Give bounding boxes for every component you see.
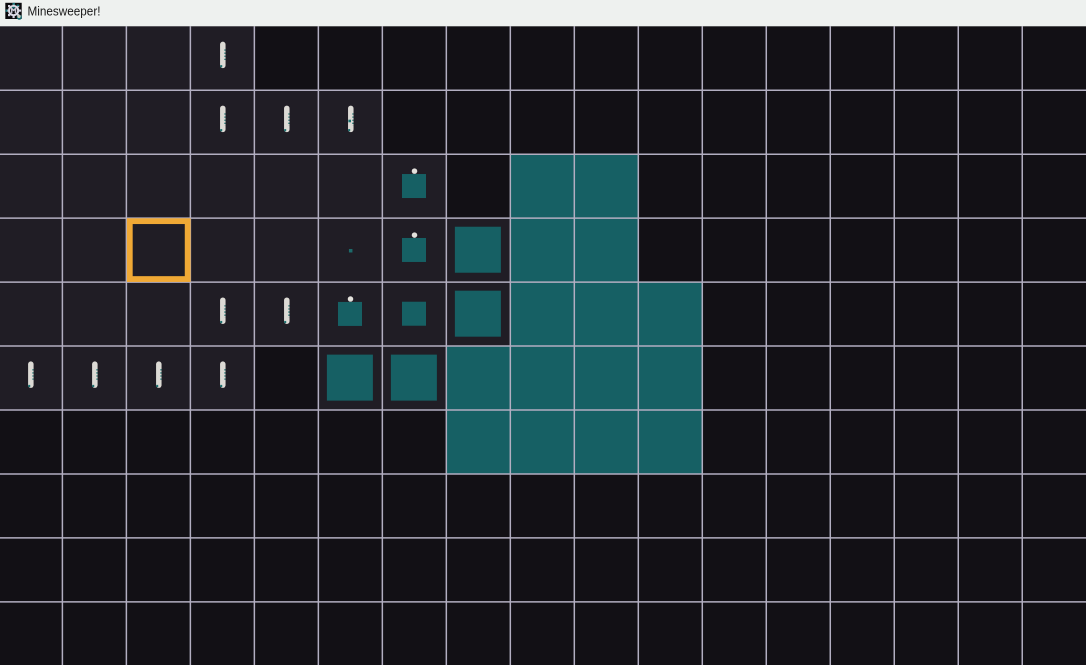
svg-text:Minesweeper!: Minesweeper! xyxy=(28,4,101,18)
